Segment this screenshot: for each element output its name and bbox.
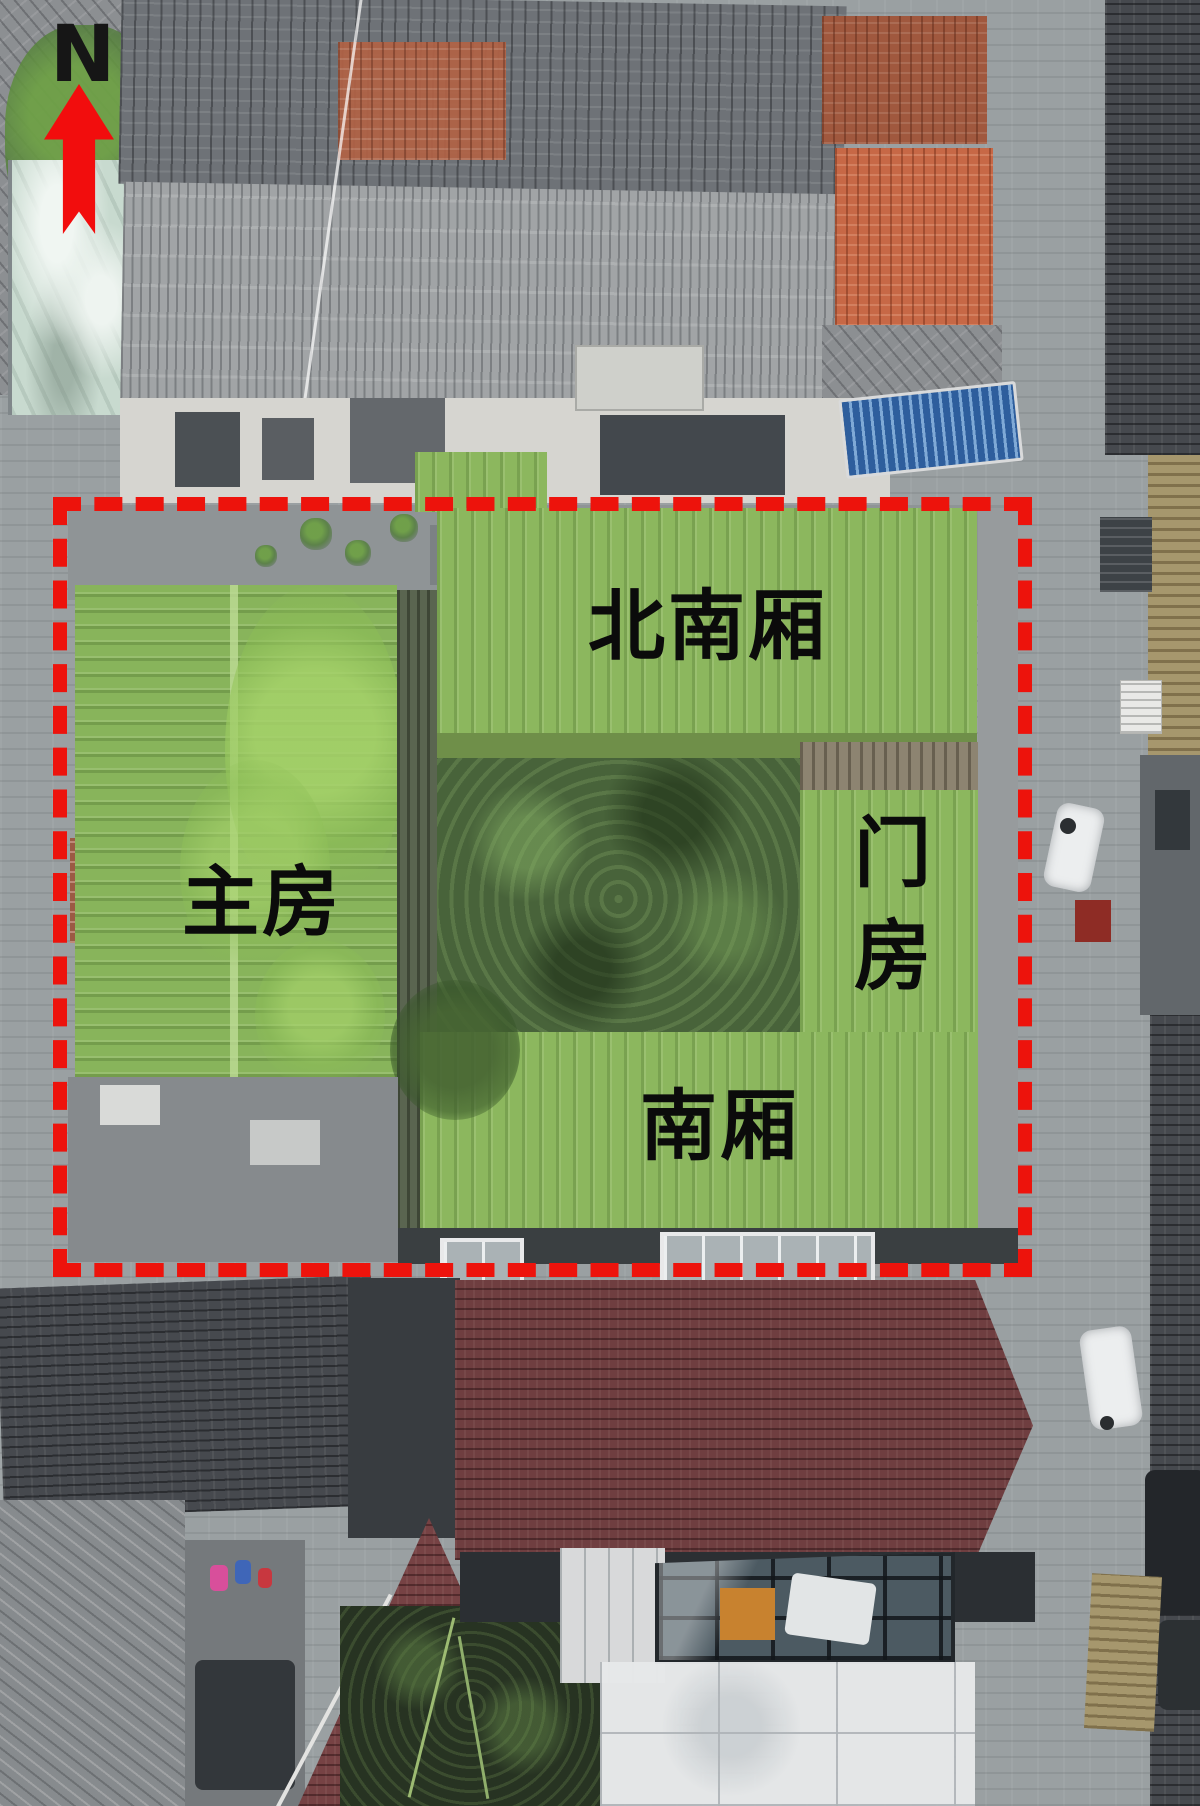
white-canopy	[600, 1662, 975, 1806]
north-wing-label: 北南厢	[588, 588, 828, 668]
aerial-site-figure: N 北南厢 主房 门房 南厢	[0, 0, 1200, 1806]
orange-box	[720, 1588, 775, 1640]
dark-doorway	[1155, 790, 1190, 850]
scooter-wheel	[1100, 1416, 1114, 1430]
top-right-dark-roof	[1105, 0, 1200, 455]
red-tile-patch	[338, 42, 506, 160]
tan-tarp-bottom	[1084, 1573, 1162, 1731]
laundry-item-blue	[235, 1560, 251, 1584]
facade-window	[175, 412, 240, 487]
north-letter: N	[50, 10, 115, 100]
laundry-item-pink	[210, 1565, 228, 1591]
south-wing-label: 南厢	[640, 1088, 800, 1168]
dark-vehicle	[195, 1660, 295, 1790]
maroon-roof	[455, 1280, 1033, 1560]
facade-window	[600, 415, 785, 495]
main-house-label: 主房	[182, 864, 342, 944]
mid-dark-gable	[348, 1278, 460, 1538]
metal-gate	[1100, 517, 1152, 592]
red-signboard	[1075, 900, 1111, 942]
gate-house-label: 门房	[845, 812, 925, 1018]
red-roof-lower	[835, 148, 993, 326]
dark-motorbike	[1158, 1620, 1200, 1710]
ac-unit	[1120, 680, 1162, 734]
bottom-left-light-roof	[0, 1500, 185, 1806]
white-sheet	[784, 1572, 877, 1645]
gray-roof-lower-slope	[120, 182, 850, 420]
facade-window	[262, 418, 314, 480]
white-shed	[575, 345, 704, 411]
laundry-item-red	[258, 1568, 272, 1588]
bottom-left-dark-roof	[0, 1276, 379, 1519]
scooter-seat	[1060, 818, 1076, 834]
red-roof-upper	[822, 16, 987, 144]
